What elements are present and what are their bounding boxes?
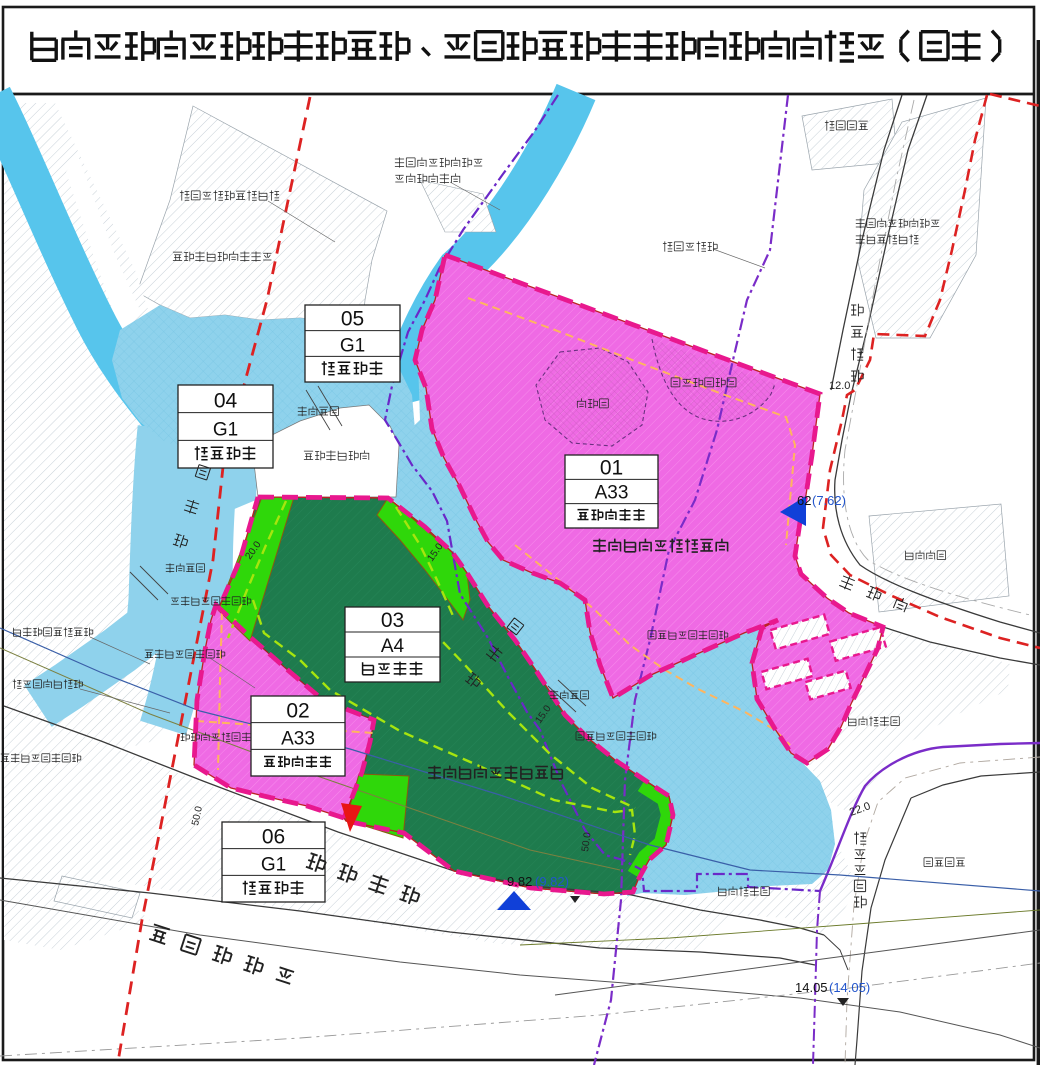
svg-text:14.05: 14.05 [795, 980, 828, 995]
svg-text:05: 05 [341, 308, 364, 331]
svg-text:A33: A33 [595, 483, 629, 504]
svg-text:04: 04 [214, 390, 238, 413]
svg-text:A33: A33 [281, 728, 315, 749]
svg-text:01: 01 [600, 456, 623, 479]
svg-text:(14.05): (14.05) [829, 980, 870, 995]
svg-text:9.82: 9.82 [507, 874, 532, 889]
svg-text:02: 02 [286, 700, 309, 723]
svg-text:G1: G1 [213, 419, 238, 440]
svg-text:(9.82): (9.82) [535, 874, 569, 889]
svg-text:12.0: 12.0 [829, 380, 850, 392]
svg-text:G1: G1 [340, 335, 365, 356]
svg-text:06: 06 [262, 826, 285, 849]
svg-text:G1: G1 [261, 854, 286, 875]
svg-text:03: 03 [381, 609, 404, 632]
svg-text:A4: A4 [381, 636, 405, 657]
svg-text:62: 62 [797, 493, 811, 508]
svg-text:(7.62): (7.62) [812, 493, 846, 508]
